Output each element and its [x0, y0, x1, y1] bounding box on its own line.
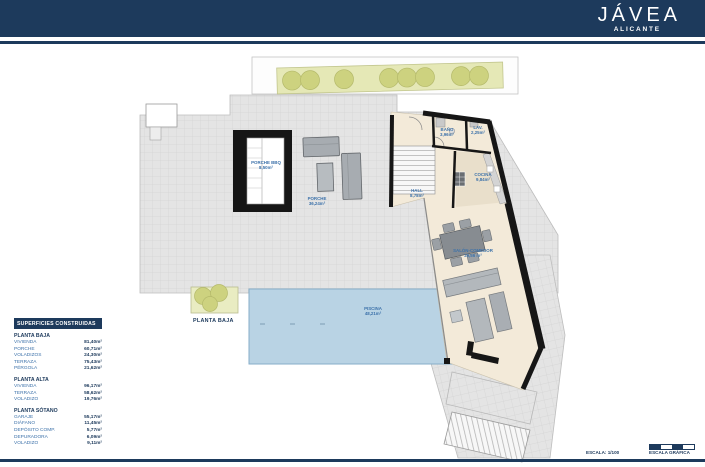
page: JÁVEA ALICANTE: [0, 0, 705, 467]
legend-row: VIVIENDA 96,17m²: [14, 384, 102, 391]
room-name: LAV.: [473, 125, 482, 130]
interior-stairs: [393, 146, 435, 194]
room-name: BAÑO: [441, 127, 454, 132]
room-name: SALÓN-COMEDOR: [453, 248, 493, 253]
room-name: COCINA: [474, 172, 491, 177]
floor-plan-drawing: [0, 0, 705, 467]
planter-left: [191, 285, 238, 314]
room-name: PORCHE: [308, 196, 327, 201]
room-area: 36,24m²: [297, 201, 337, 206]
graphic-scale-label: ESCALA GRÁFICA: [649, 450, 690, 455]
legend-row: VOLADIZO 19,76m²: [14, 397, 102, 404]
floor-label: PLANTA BAJA: [193, 318, 234, 324]
legend-row: VOLADIZOS 24,30m²: [14, 353, 102, 360]
scale-label: ESCALA: 1/100: [586, 450, 619, 455]
legend-section-title: PLANTA SÓTANO: [14, 408, 102, 415]
room-area: 9,84m²: [466, 177, 500, 182]
legend-title: SUPERFICIES CONSTRUIDAS: [14, 318, 102, 329]
room-label-bano: BAÑO 3,96m²: [434, 127, 460, 138]
room-label-salon-comedor: SALÓN-COMEDOR 29,56 m²: [445, 248, 501, 259]
room-name: PORCHE BBQ: [251, 160, 281, 165]
room-label-hall: HALL 8,78m²: [404, 188, 430, 199]
legend-row: DEPÓSITO COMP. 5,77m²: [14, 428, 102, 435]
room-area: 2,25m²: [467, 130, 489, 135]
room-name: PISCINA: [364, 306, 382, 311]
room-name: HALL: [411, 188, 423, 193]
room-area: 29,56 m²: [445, 253, 501, 258]
room-label-porche: PORCHE 36,24m²: [297, 196, 337, 207]
legend-row: DIÁFANO 11,45m²: [14, 421, 102, 428]
planter-strip: [277, 62, 504, 94]
footer-rule: [0, 459, 705, 462]
graphic-scale-bar: [649, 444, 695, 450]
room-label-lav: LAV. 2,25m²: [467, 125, 489, 136]
porche-bbq-room: [233, 130, 292, 212]
room-area: 8,78m²: [404, 193, 430, 198]
legend-row: VIVIENDA 81,40m²: [14, 340, 102, 347]
legend-row: PÉRGOLA 21,62m²: [14, 366, 102, 373]
legend: SUPERFICIES CONSTRUIDAS PLANTA BAJA VIVI…: [14, 318, 102, 448]
room-label-porche-bbq: PORCHE BBQ 8,50m²: [248, 160, 284, 171]
legend-section-title: PLANTA ALTA: [14, 377, 102, 384]
legend-row: VOLADIZO 9,11m²: [14, 441, 102, 448]
room-area: 48,21m²: [352, 311, 394, 316]
legend-section-title: PLANTA BAJA: [14, 333, 102, 340]
room-area: 8,50m²: [248, 165, 284, 170]
pool: [249, 289, 471, 364]
room-label-cocina: COCINA 9,84m²: [466, 172, 500, 183]
room-label-piscina: PISCINA 48,21m²: [352, 306, 394, 317]
room-area: 3,96m²: [434, 132, 460, 137]
